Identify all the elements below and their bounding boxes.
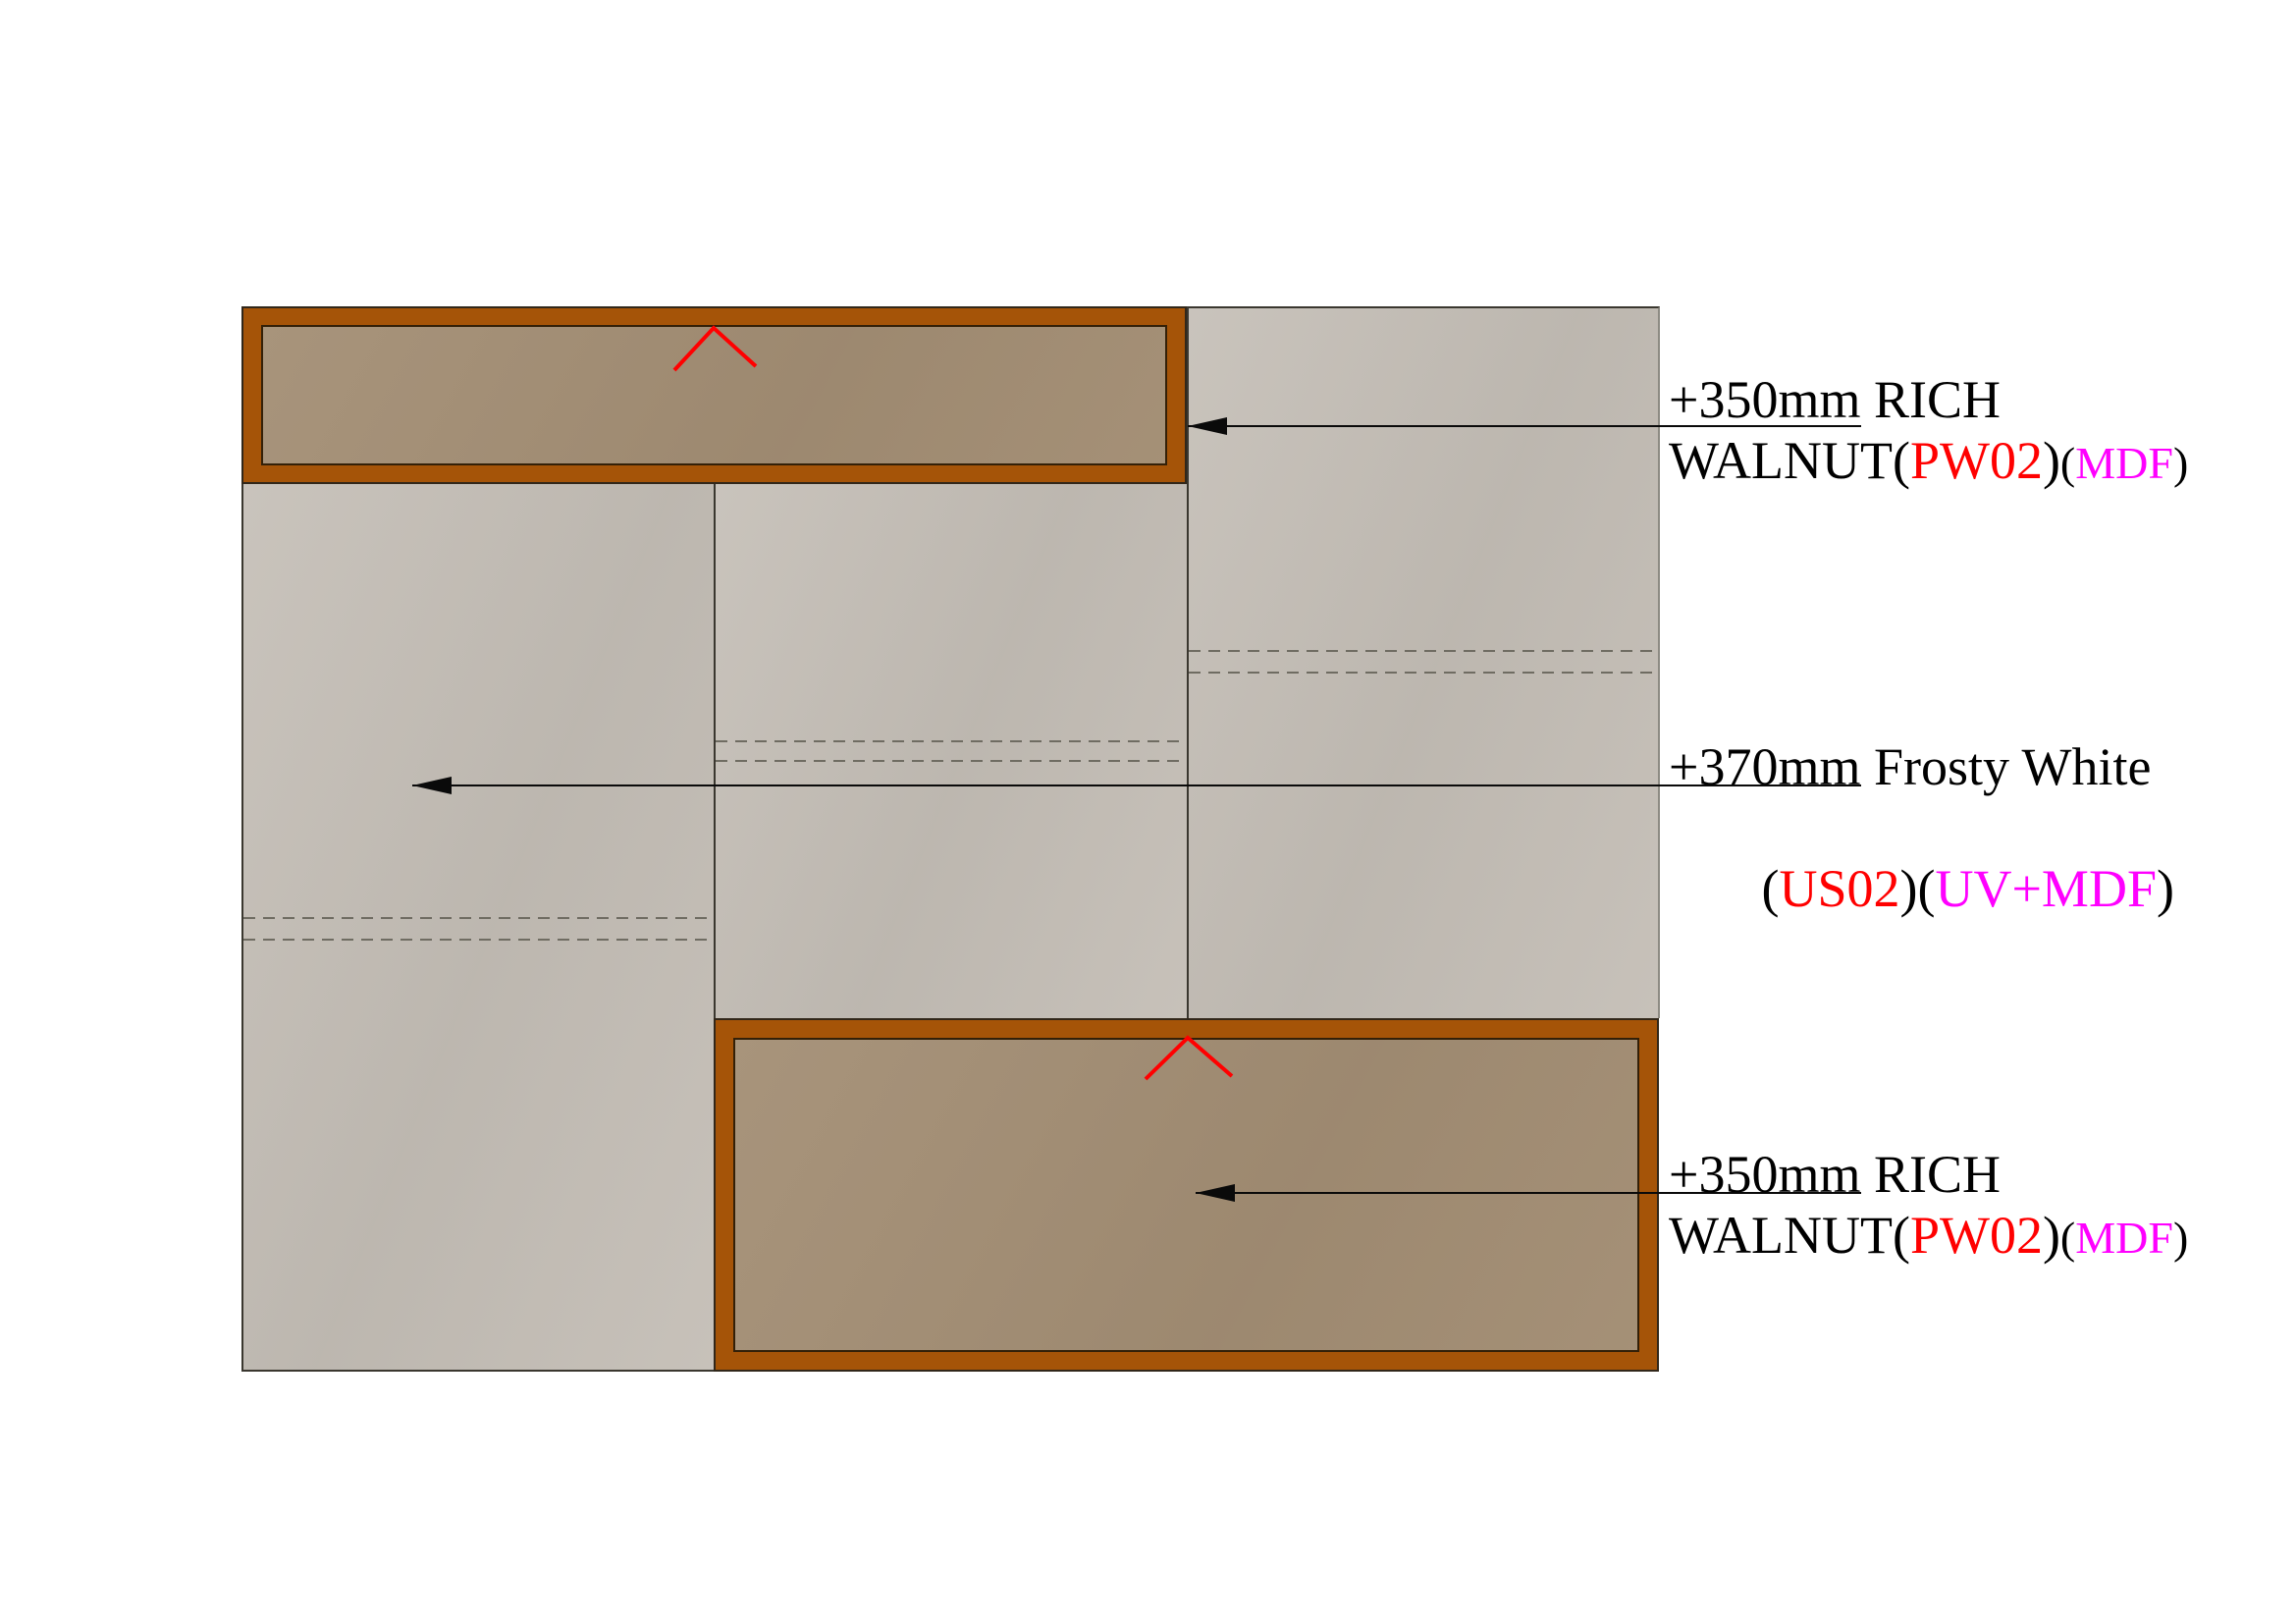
annotation-line: (US02)(UV+MDF) (1669, 797, 2174, 980)
annotation-text-segment: +350mm RICH (1669, 1145, 2001, 1204)
shelf-dashed-line (1189, 650, 1658, 652)
annotation-line: +350mm RICH (1669, 1144, 2188, 1205)
annotation-text-segment: ) (2043, 431, 2060, 490)
shelf-dashed-line (243, 917, 712, 919)
shelf-dashed-line (1189, 672, 1658, 674)
annotation-bottom-walnut: +350mm RICH WALNUT(PW02)(MDF) (1669, 1144, 2188, 1269)
grain-chevron-icon (1139, 1031, 1237, 1086)
annotation-text-segment: MDF (2075, 438, 2173, 488)
annotation-line: +370mm Frosty White (1669, 736, 2174, 797)
annotation-text-segment: +350mm RICH (1669, 370, 2001, 429)
annotation-text-segment: ) (2157, 859, 2174, 918)
annotation-text-segment: ( (1748, 859, 1779, 918)
annotation-text-segment: ) (2043, 1206, 2060, 1265)
annotation-text-segment: +370mm Frosty White (1669, 737, 2151, 796)
annotation-text-segment: ) (2173, 1213, 2188, 1263)
annotation-text-segment: US02 (1779, 859, 1899, 918)
shelf-dashed-line (243, 939, 712, 941)
annotation-line: WALNUT(PW02)(MDF) (1669, 430, 2188, 494)
annotation-text-segment: UV+MDF (1935, 859, 2157, 918)
annotation-text-segment: WALNUT( (1669, 1206, 1910, 1265)
annotation-text-segment: PW02 (1910, 1206, 2043, 1265)
shelf-dashed-line (716, 740, 1185, 742)
annotation-text-segment: MDF (2075, 1213, 2173, 1263)
annotation-text-segment: ( (2060, 1213, 2075, 1263)
annotation-top-walnut: +350mm RICH WALNUT(PW02)(MDF) (1669, 369, 2188, 494)
shelf-dashed-line (716, 760, 1185, 762)
leader-arrowhead-icon (412, 777, 452, 794)
annotation-line: +350mm RICH (1669, 369, 2188, 430)
annotation-frosty-white: +370mm Frosty White (US02)(UV+MDF) (1669, 736, 2174, 980)
annotation-text-segment: )( (1900, 859, 1936, 918)
middle-gray-panel (714, 484, 1187, 1018)
grain-chevron-icon (667, 322, 762, 377)
right-gray-panel (1187, 306, 1660, 1018)
annotation-text-segment: ) (2173, 438, 2188, 488)
leader-arrowhead-icon (1188, 417, 1227, 435)
annotation-text-segment: PW02 (1910, 431, 2043, 490)
left-gray-panel (241, 484, 714, 1372)
leader-line (412, 784, 1861, 786)
annotation-text-segment: WALNUT( (1669, 431, 1910, 490)
annotation-text-segment: ( (2060, 438, 2075, 488)
elevation-drawing-canvas: +350mm RICH WALNUT(PW02)(MDF) +370mm Fro… (0, 0, 2296, 1623)
annotation-line: WALNUT(PW02)(MDF) (1669, 1205, 2188, 1269)
leader-arrowhead-icon (1196, 1184, 1235, 1202)
